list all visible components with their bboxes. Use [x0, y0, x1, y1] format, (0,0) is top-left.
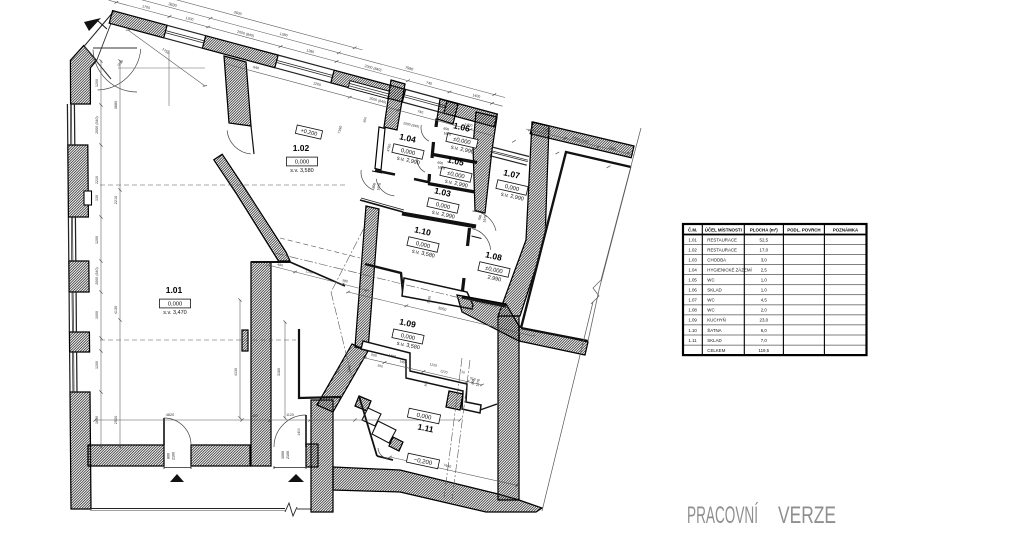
- svg-text:800: 800: [167, 453, 171, 459]
- svg-text:PODL. POVRCH: PODL. POVRCH: [787, 227, 820, 232]
- svg-text:SKLAD: SKLAD: [707, 288, 721, 293]
- svg-text:1120: 1120: [286, 413, 294, 417]
- svg-text:ÚČEL MÍSTNOSTI: ÚČEL MÍSTNOSTI: [705, 227, 742, 232]
- svg-text:130: 130: [95, 195, 99, 201]
- svg-text:Č.M.: Č.M.: [688, 227, 697, 232]
- svg-text:1.05: 1.05: [688, 278, 697, 283]
- svg-text:1,0: 1,0: [761, 278, 768, 283]
- svg-text:CHODBA: CHODBA: [707, 257, 726, 262]
- svg-text:1.01: 1.01: [166, 285, 183, 295]
- svg-text:7,0: 7,0: [761, 338, 768, 343]
- svg-text:3,0: 3,0: [761, 257, 768, 262]
- svg-text:WC: WC: [707, 278, 714, 283]
- svg-text:1,0: 1,0: [761, 288, 768, 293]
- svg-text:ŠATNA: ŠATNA: [707, 328, 721, 333]
- svg-text:4130: 4130: [114, 306, 118, 314]
- svg-text:3680: 3680: [114, 101, 118, 109]
- svg-text:2100: 2100: [286, 451, 290, 459]
- svg-text:2210: 2210: [114, 196, 118, 204]
- svg-text:s.v. 3,580: s.v. 3,580: [290, 168, 313, 174]
- svg-text:3180: 3180: [277, 368, 281, 376]
- svg-text:RESTAURACE: RESTAURACE: [707, 237, 737, 242]
- svg-text:SKLAD: SKLAD: [707, 338, 721, 343]
- svg-text:2000 (840): 2000 (840): [95, 116, 99, 133]
- svg-text:52,5: 52,5: [760, 237, 769, 242]
- svg-text:1.09: 1.09: [688, 318, 697, 323]
- svg-text:400: 400: [252, 414, 258, 418]
- svg-text:1.03: 1.03: [688, 257, 697, 262]
- svg-text:2000 (840): 2000 (840): [95, 267, 99, 284]
- svg-text:23,0: 23,0: [760, 318, 769, 323]
- svg-text:2100: 2100: [172, 452, 176, 460]
- svg-text:2,5: 2,5: [761, 267, 768, 272]
- svg-text:6,0: 6,0: [761, 328, 768, 333]
- svg-text:RESTAURACE: RESTAURACE: [707, 247, 737, 252]
- svg-text:4130: 4130: [234, 368, 238, 376]
- svg-text:1.07: 1.07: [688, 298, 697, 303]
- svg-text:PRACOVNÍ: PRACOVNÍ: [687, 502, 758, 529]
- svg-text:4820: 4820: [166, 413, 174, 417]
- svg-text:1000: 1000: [281, 451, 285, 459]
- svg-text:s.v. 3,470: s.v. 3,470: [163, 310, 186, 316]
- svg-text:CELKEM: CELKEM: [707, 348, 725, 353]
- svg-text:2210: 2210: [95, 176, 99, 184]
- svg-text:POZNÁMKA: POZNÁMKA: [833, 227, 859, 232]
- svg-text:KUCHYŇ: KUCHYŇ: [707, 318, 726, 323]
- svg-text:0,000: 0,000: [168, 302, 183, 308]
- svg-text:1.11: 1.11: [688, 338, 697, 343]
- svg-text:WC: WC: [707, 308, 714, 313]
- svg-text:1.06: 1.06: [688, 288, 697, 293]
- svg-text:1.02: 1.02: [688, 247, 697, 252]
- svg-text:VERZE: VERZE: [778, 502, 836, 529]
- svg-text:1.04: 1.04: [688, 267, 697, 272]
- svg-text:1.01: 1.01: [688, 237, 697, 242]
- svg-text:1.08: 1.08: [688, 308, 697, 313]
- svg-text:1200: 1200: [95, 79, 99, 87]
- svg-text:4,5: 4,5: [761, 298, 768, 303]
- svg-text:17,0: 17,0: [760, 247, 769, 252]
- svg-text:1200: 1200: [95, 361, 99, 369]
- svg-text:1.02: 1.02: [293, 143, 310, 153]
- svg-text:1000: 1000: [95, 311, 99, 319]
- svg-text:PLOCHA (m²): PLOCHA (m²): [750, 227, 778, 232]
- svg-text:1400: 1400: [297, 428, 301, 436]
- svg-text:1200: 1200: [95, 236, 99, 244]
- svg-text:HYGIENICKÉ ZÁZEMÍ: HYGIENICKÉ ZÁZEMÍ: [707, 267, 752, 272]
- svg-text:1.10: 1.10: [688, 328, 697, 333]
- svg-text:2,0: 2,0: [761, 308, 768, 313]
- svg-text:0,000: 0,000: [295, 160, 310, 166]
- svg-text:WC: WC: [707, 298, 714, 303]
- svg-text:119,5: 119,5: [758, 348, 769, 353]
